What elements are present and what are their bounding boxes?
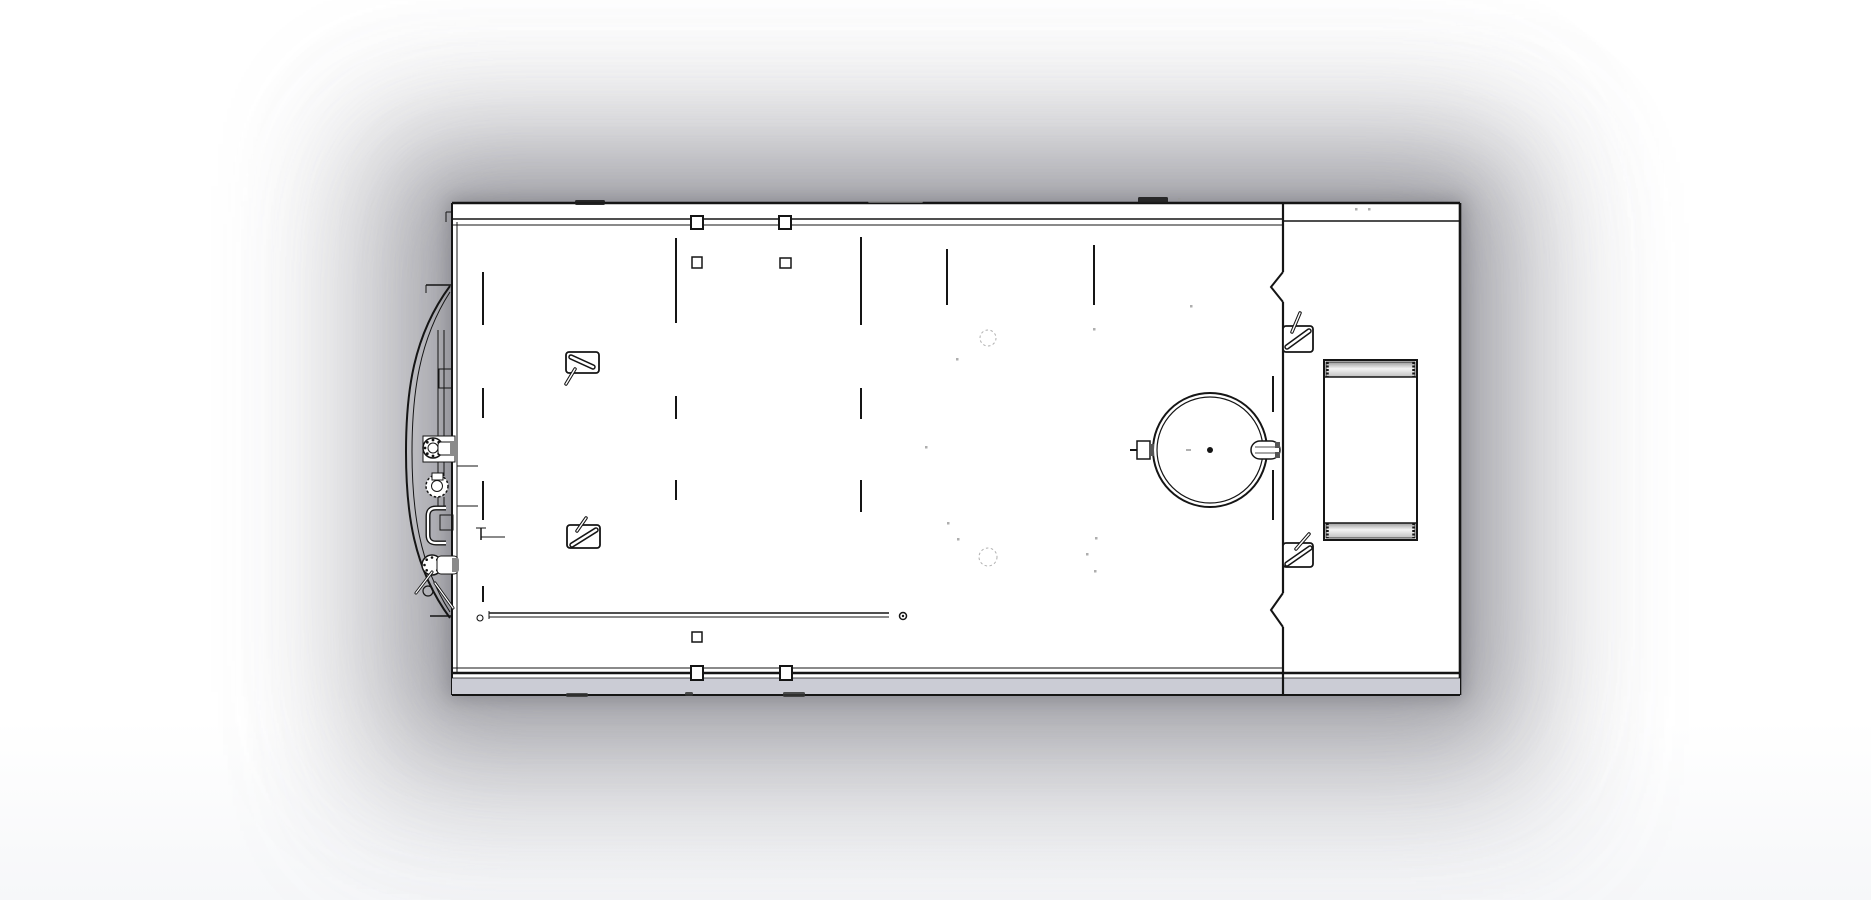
rope-clip[interactable] <box>692 632 702 642</box>
speck <box>1190 305 1193 308</box>
cad-viewport[interactable] <box>0 0 1871 900</box>
speck <box>1368 208 1371 211</box>
speck <box>1093 328 1096 331</box>
valve-block-upper[interactable] <box>439 369 452 388</box>
trailer-top-view-drawing[interactable] <box>0 0 1871 900</box>
rope-clip[interactable] <box>780 258 791 268</box>
toolbox-top-band <box>1326 362 1415 377</box>
speck <box>1095 537 1098 540</box>
coupling-collar <box>450 441 456 456</box>
edge-smudge <box>685 692 693 696</box>
valve-neck <box>432 473 443 480</box>
edge-smudge <box>566 693 588 697</box>
edge-smudge <box>868 200 923 203</box>
valve-handwheel[interactable] <box>426 473 448 497</box>
toolbox-bottom-band <box>1326 523 1415 538</box>
edge-smudge <box>783 692 805 697</box>
hose-coupling-upper[interactable] <box>423 436 456 462</box>
pipe-cap-circle <box>423 586 433 596</box>
bottom-bumper-band <box>452 678 1460 695</box>
coupling-collar <box>452 558 458 572</box>
speck <box>956 358 959 361</box>
edge-smudge <box>1138 197 1168 203</box>
deck-sheet <box>452 203 1460 695</box>
rope-clip[interactable] <box>692 257 702 268</box>
speck <box>947 522 950 525</box>
speck <box>957 538 960 541</box>
speck <box>1094 570 1097 573</box>
hose-coupling-lower[interactable] <box>422 555 458 575</box>
hinge-bracket <box>1137 441 1150 459</box>
edge-smudge <box>575 200 605 205</box>
toolbox-outline <box>1324 360 1417 540</box>
speck <box>925 446 928 449</box>
speck <box>1355 208 1358 211</box>
speck <box>1178 198 1181 201</box>
deck-frame <box>446 203 1460 695</box>
rope-clip[interactable] <box>779 216 791 229</box>
speck <box>1086 553 1089 556</box>
brace-rods <box>416 572 453 608</box>
rope-clip[interactable] <box>780 666 792 680</box>
front-bulkhead-assembly[interactable] <box>406 285 458 618</box>
rope-clip[interactable] <box>691 216 703 229</box>
manhole-center-pin <box>1207 447 1213 453</box>
rope-clip[interactable] <box>691 666 703 680</box>
toolbox[interactable] <box>1324 360 1417 540</box>
grab-handle[interactable] <box>428 508 446 543</box>
handle-tube-outline <box>428 508 446 543</box>
